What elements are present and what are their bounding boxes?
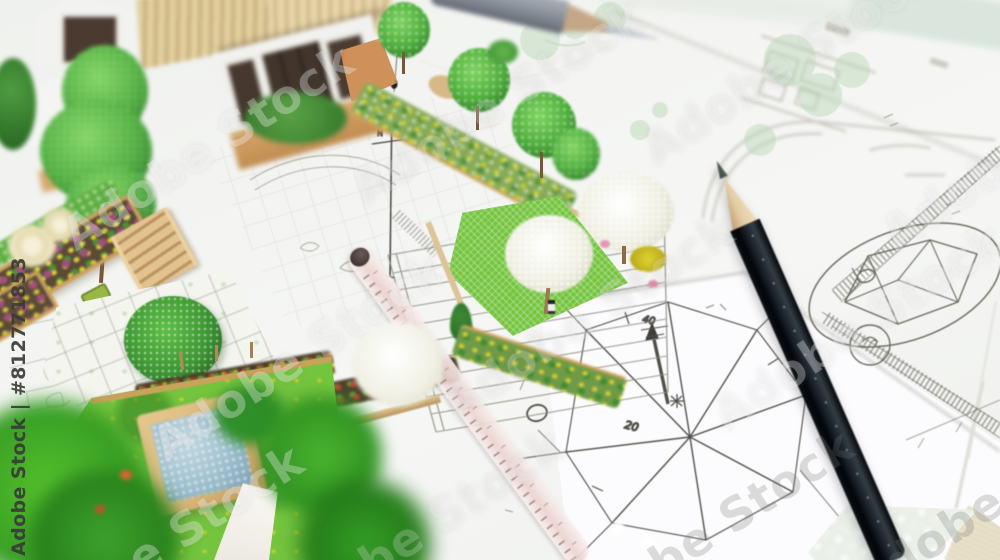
model-tree-trunk xyxy=(250,342,253,358)
pink-flowers xyxy=(648,280,658,288)
pink-flowers xyxy=(600,240,610,248)
blossom-tree-trunk xyxy=(622,246,626,264)
model-tree-trunk xyxy=(215,345,218,361)
model-tree-canopy xyxy=(552,128,600,180)
orange-flower-speck xyxy=(120,470,132,480)
model-bush xyxy=(488,40,518,64)
blossom-tree xyxy=(352,322,444,406)
watermark-id-text: Adobe Stock | #812771853 xyxy=(8,257,30,556)
grey-pencil-wood xyxy=(562,4,609,41)
model-tree-trunk xyxy=(402,52,405,74)
model-tree-trunk xyxy=(540,152,543,178)
blossom-tree xyxy=(505,215,593,293)
grey-pencil-tip xyxy=(605,19,659,46)
black-pencil-lead xyxy=(712,159,728,180)
miniature-figure xyxy=(548,300,555,314)
orange-flower-speck xyxy=(95,505,105,514)
model-tree-trunk xyxy=(476,106,479,130)
courtyard-shrubs xyxy=(245,92,347,144)
model-tree-canopy xyxy=(378,2,430,58)
compass-radius-label: 20 xyxy=(623,418,640,434)
photo-scene: 40 20 N xyxy=(0,0,1000,560)
yellow-bush xyxy=(630,246,666,272)
cream-flowers xyxy=(42,208,78,242)
